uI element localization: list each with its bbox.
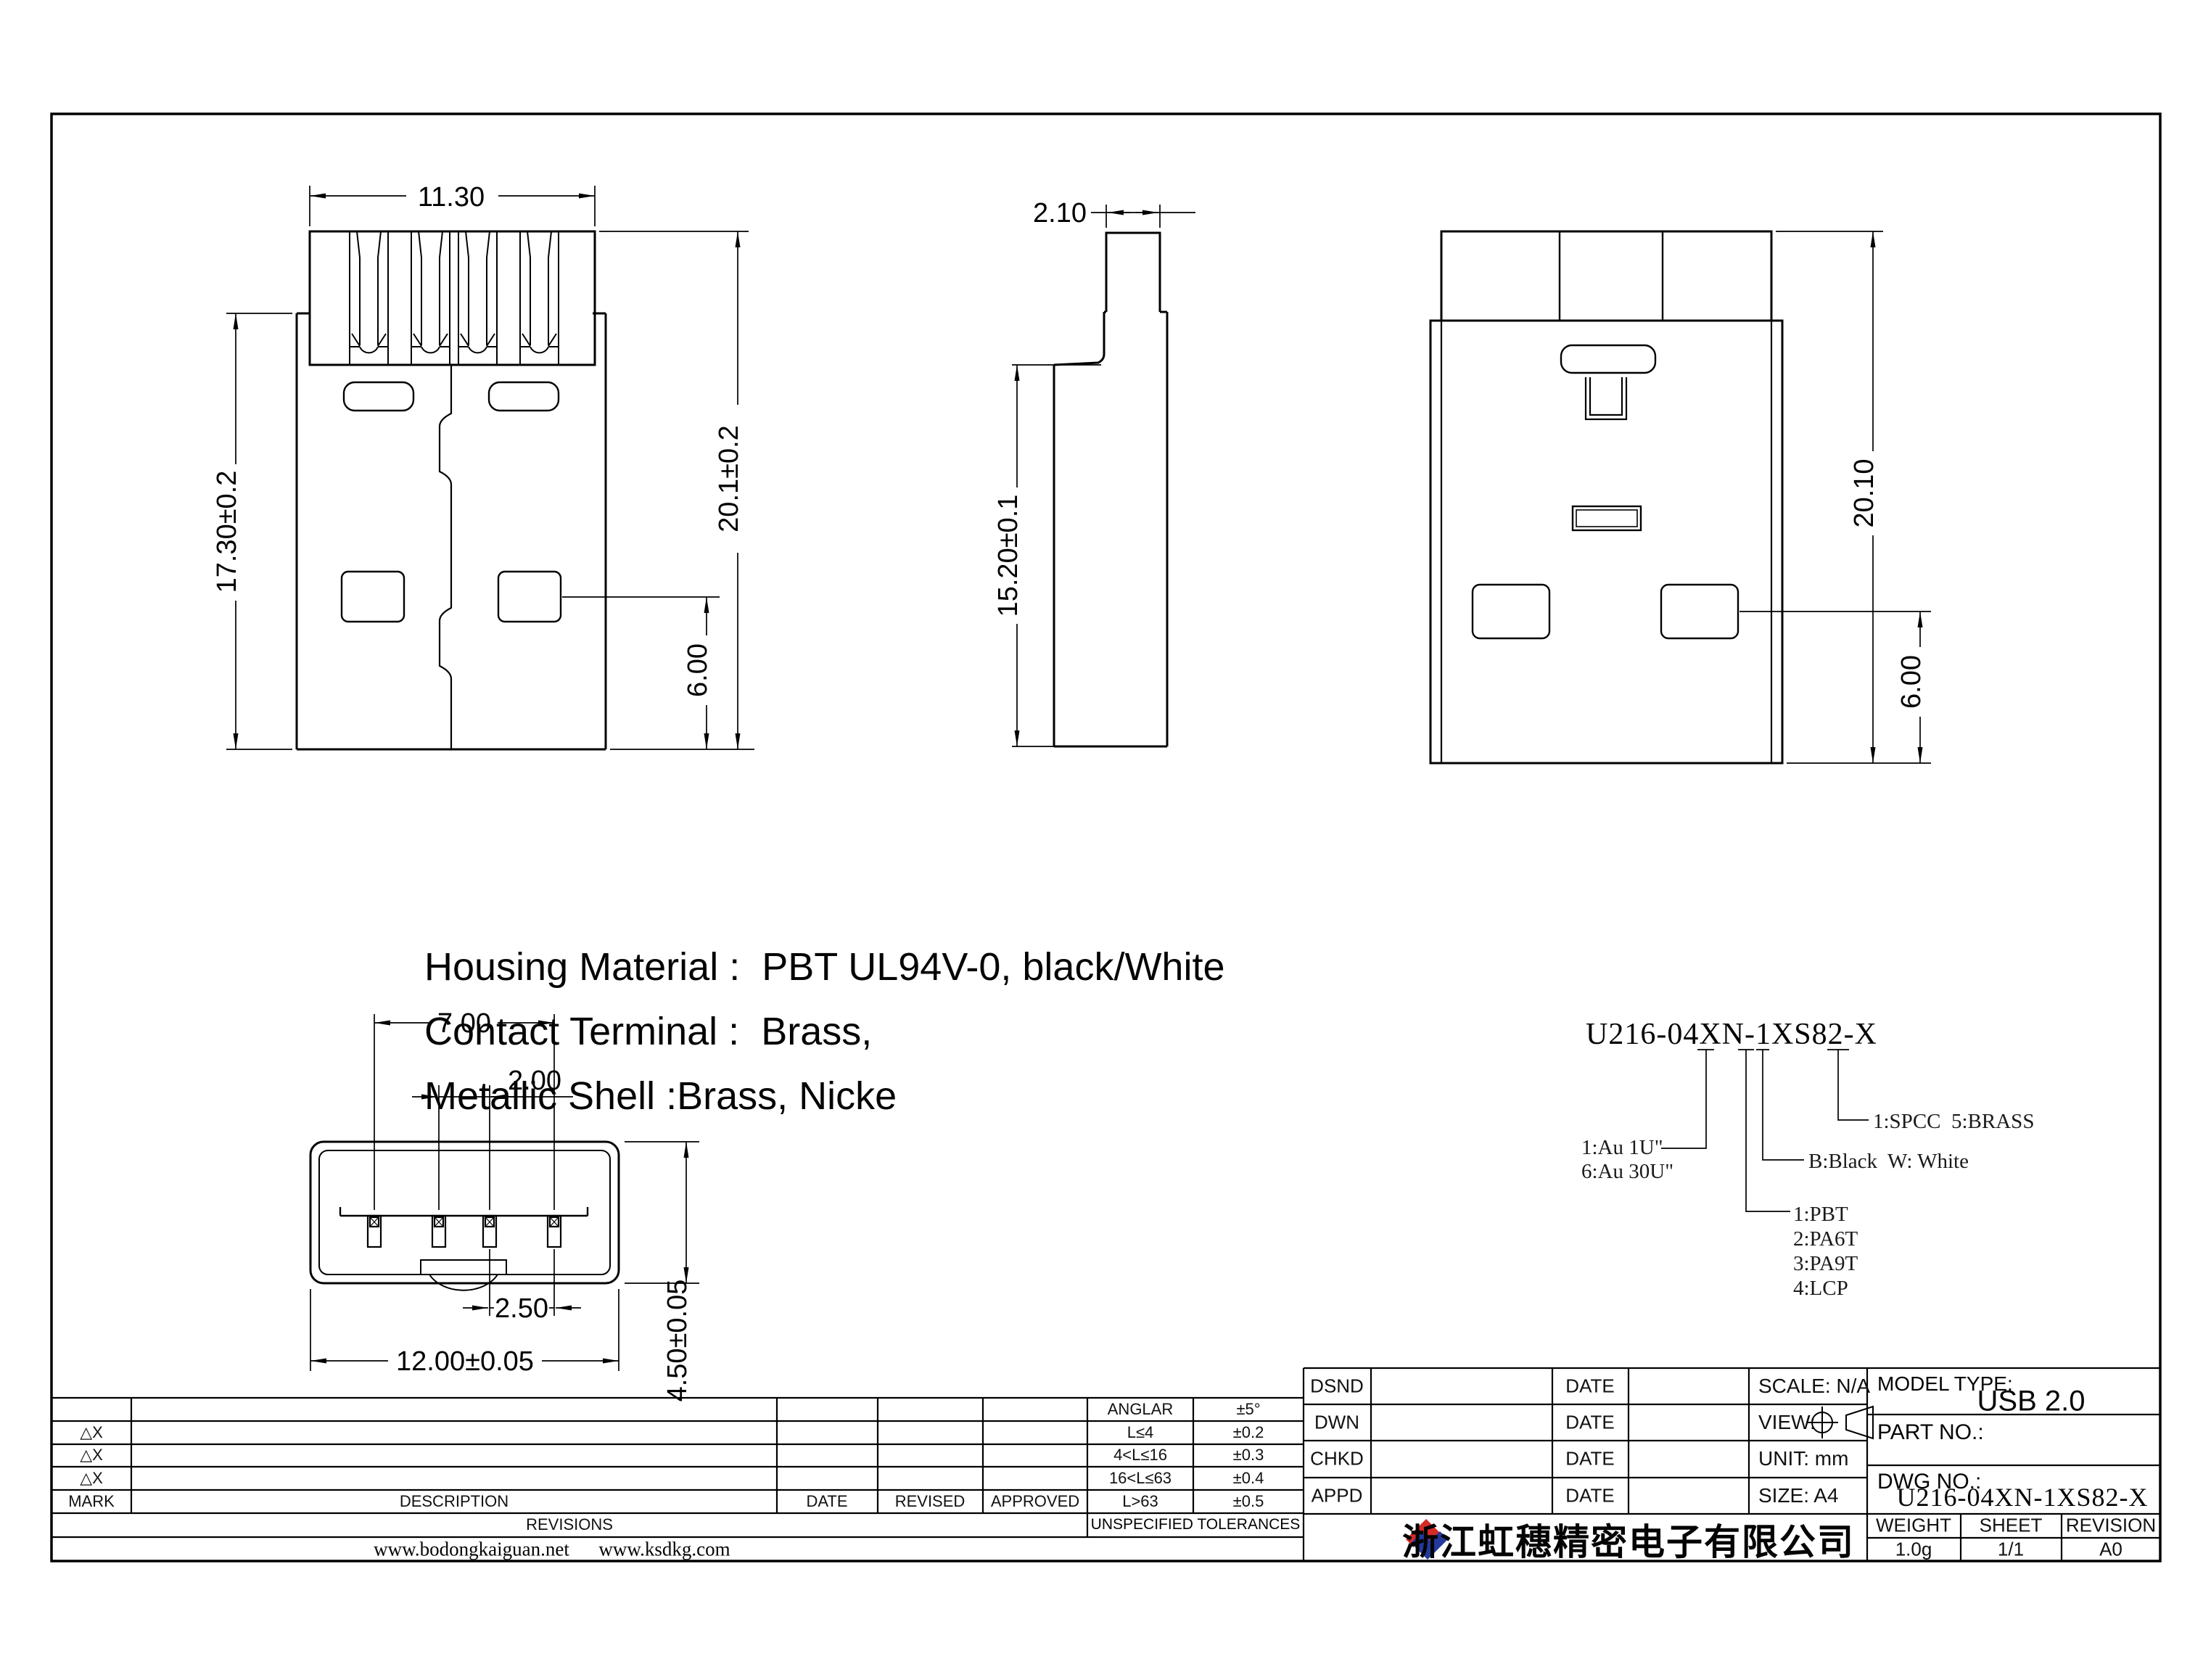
drawing-sheet: 11.30 17.30±0.2 20.1±0.2 6.00 2.10 15.2 <box>0 0 2211 1680</box>
callout-plating-2: 6:Au 30U" <box>1581 1160 1673 1184</box>
tol-label-4: L>63 <box>1122 1492 1158 1511</box>
tol-label-1: L≤4 <box>1127 1423 1154 1442</box>
revision-label: REVISION <box>2066 1515 2156 1537</box>
model-type-value: USB 2.0 <box>1977 1385 2086 1418</box>
unspecified-tolerances-label: UNSPECIFIED TOLERANCES <box>1091 1516 1301 1533</box>
unit-cell: UNIT: mm <box>1758 1447 1848 1470</box>
dim-front-hole-offset: 6.00 <box>683 643 713 697</box>
sheet-label: SHEET <box>1980 1515 2043 1537</box>
callout-housing-3: 3:PA9T <box>1793 1252 1858 1276</box>
view-cell: VIEW: <box>1758 1411 1816 1434</box>
callout-housing-1: 1:PBT <box>1793 1203 1848 1227</box>
delta-mark-2: △X <box>80 1446 103 1465</box>
tol-label-anglar: ANGLAR <box>1108 1400 1173 1419</box>
dim-side-tab-width: 2.10 <box>1033 198 1087 228</box>
note-housing-material: Housing Material : PBT UL94V-0, black/Wh… <box>424 944 1225 989</box>
dim-front-height-right: 20.1±0.2 <box>714 425 744 532</box>
delta-mark-1: △X <box>80 1423 103 1442</box>
dim-front-height-left: 17.30±0.2 <box>212 471 242 593</box>
part-number: U216-04XN-1XS82-X <box>1586 1017 1877 1052</box>
weight-label: WEIGHT <box>1876 1515 1951 1537</box>
date-cell-1: DATE <box>1565 1375 1614 1398</box>
callout-plating-1: 1:Au 1U" <box>1581 1136 1663 1160</box>
callout-housing-4: 4:LCP <box>1793 1277 1848 1301</box>
sheet-value: 1/1 <box>1998 1539 2024 1561</box>
title-row-appd: APPD <box>1312 1485 1363 1507</box>
col-header-description: DESCRIPTION <box>400 1492 509 1511</box>
tol-label-2: 4<L≤16 <box>1113 1446 1167 1465</box>
col-header-approved: APPROVED <box>991 1492 1079 1511</box>
bottom-view: 7.00 2.00 2.50 12.00±0.05 4.50±0.05 <box>310 1008 699 1401</box>
title-row-dwn: DWN <box>1314 1412 1359 1434</box>
col-header-mark: MARK <box>68 1492 115 1511</box>
dim-side-height: 15.20±0.1 <box>993 495 1024 617</box>
callout-shell-materials: 1:SPCC 5:BRASS <box>1873 1110 2034 1134</box>
dim-back-height: 20.10 <box>1849 458 1879 527</box>
callout-housing-2: 2:PA6T <box>1793 1227 1858 1251</box>
tol-value-3: ±0.4 <box>1233 1469 1264 1488</box>
scale-cell: SCALE: N/A <box>1758 1375 1870 1398</box>
website-2: www.ksdkg.com <box>598 1539 730 1561</box>
dim-back-hole-offset: 6.00 <box>1896 655 1927 709</box>
col-header-revised: REVISED <box>895 1492 965 1511</box>
dim-bottom-height: 4.50±0.05 <box>662 1280 693 1402</box>
dwg-no-value: U216-04XN-1XS82-X <box>1897 1482 2149 1512</box>
note-metallic-shell: Metallic Shell :Brass, Nicke <box>424 1074 897 1119</box>
title-row-chkd: CHKD <box>1310 1448 1364 1470</box>
tol-label-3: 16<L≤63 <box>1109 1469 1172 1488</box>
tol-value-anglar: ±5° <box>1236 1400 1260 1419</box>
weight-value: 1.0g <box>1895 1539 1932 1561</box>
tol-value-1: ±0.2 <box>1233 1423 1264 1442</box>
drawing-frame <box>52 114 2160 1561</box>
company-name: 浙江虹穗精密电子有限公司 <box>1402 1513 1855 1565</box>
tol-value-4: ±0.5 <box>1233 1492 1264 1511</box>
front-view: 11.30 17.30±0.2 20.1±0.2 6.00 <box>212 182 754 749</box>
note-contact-terminal: Contact Terminal : Brass, <box>424 1009 872 1054</box>
dim-bottom-width: 12.00±0.05 <box>396 1346 534 1377</box>
side-view: 2.10 15.20±0.1 <box>993 198 1195 746</box>
callout-colors: B:Black W: White <box>1808 1150 1969 1174</box>
dim-front-width: 11.30 <box>418 182 485 213</box>
date-cell-2: DATE <box>1565 1412 1614 1434</box>
col-header-date: DATE <box>806 1492 847 1511</box>
size-cell: SIZE: A4 <box>1758 1484 1839 1507</box>
website-1: www.bodongkaiguan.net <box>374 1539 569 1561</box>
date-cell-3: DATE <box>1565 1448 1614 1470</box>
revisions-band-label: REVISIONS <box>526 1515 613 1534</box>
part-no-label: PART NO.: <box>1877 1420 1984 1445</box>
back-view: 20.10 6.00 <box>1430 231 1931 763</box>
projection-symbol-icon <box>1806 1407 1873 1438</box>
tol-value-2: ±0.3 <box>1233 1446 1264 1465</box>
date-cell-4: DATE <box>1565 1485 1614 1507</box>
title-row-dsnd: DSND <box>1310 1375 1364 1398</box>
revision-value: A0 <box>2099 1539 2123 1561</box>
delta-mark-3: △X <box>80 1469 103 1488</box>
dim-bottom-pin-pitch-right: 2.50 <box>495 1293 548 1324</box>
part-number-leaders <box>1661 1050 1869 1211</box>
